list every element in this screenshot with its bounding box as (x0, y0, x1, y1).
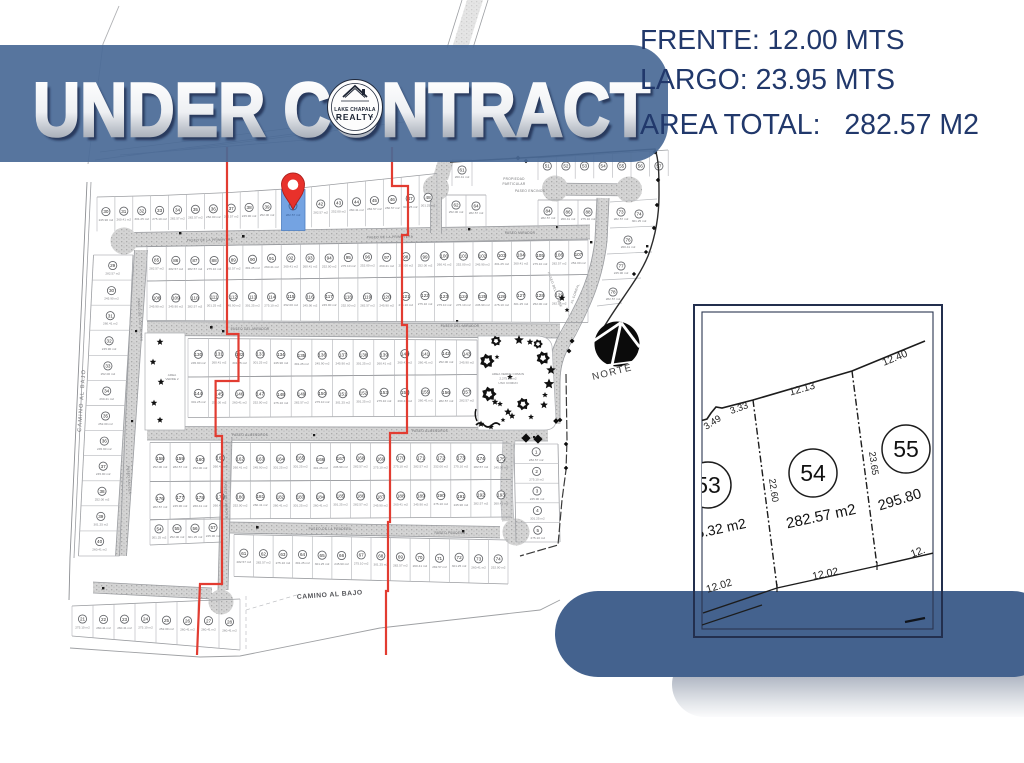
svg-text:PASEO ALMENDROS: PASEO ALMENDROS (412, 429, 448, 433)
svg-text:45: 45 (372, 198, 378, 203)
svg-text:275.10 m2: 275.10 m2 (418, 302, 433, 306)
svg-text:107: 107 (575, 252, 583, 257)
svg-text:186: 186 (357, 494, 365, 499)
svg-text:252.00 m2: 252.00 m2 (571, 261, 586, 265)
svg-text:282.57 m2: 282.57 m2 (170, 216, 185, 220)
svg-text:77: 77 (618, 264, 624, 269)
svg-text:260.41 m2: 260.41 m2 (514, 262, 529, 266)
svg-text:260.41 m2: 260.41 m2 (393, 503, 408, 507)
svg-text:25: 25 (164, 618, 170, 623)
svg-text:189: 189 (417, 494, 425, 499)
svg-text:95: 95 (346, 255, 352, 260)
svg-text:30: 30 (103, 209, 109, 214)
svg-text:282.57 m2: 282.57 m2 (606, 297, 621, 301)
svg-text:260.41 m2: 260.41 m2 (283, 265, 298, 269)
svg-text:103: 103 (498, 253, 506, 258)
svg-text:121: 121 (402, 294, 410, 299)
svg-text:260.41 m2: 260.41 m2 (213, 503, 228, 507)
svg-text:260.41 m2: 260.41 m2 (471, 565, 486, 569)
svg-text:245.90 m2: 245.90 m2 (315, 362, 330, 366)
svg-text:137: 137 (339, 352, 347, 357)
svg-text:168: 168 (357, 456, 365, 461)
svg-text:282.57 m2: 282.57 m2 (226, 266, 241, 270)
svg-text:118: 118 (345, 295, 353, 300)
svg-text:131: 131 (215, 352, 223, 357)
svg-text:70: 70 (417, 555, 423, 560)
svg-text:3: 3 (536, 489, 539, 494)
svg-text:260.41 m2: 260.41 m2 (377, 362, 392, 366)
svg-text:252.00 m2: 252.00 m2 (456, 263, 471, 267)
svg-text:252.00 m2: 252.00 m2 (331, 209, 346, 213)
svg-text:260.41 m2: 260.41 m2 (418, 361, 433, 365)
svg-text:275.10 m2: 275.10 m2 (276, 561, 291, 565)
svg-text:245.90 m2: 245.90 m2 (99, 218, 114, 222)
svg-text:301.25 m2: 301.25 m2 (356, 400, 371, 404)
svg-text:282.57 m2: 282.57 m2 (188, 216, 203, 220)
svg-text:245.90 m2: 245.90 m2 (334, 562, 349, 566)
svg-text:USO COMUN: USO COMUN (498, 381, 517, 385)
svg-text:96: 96 (365, 255, 371, 260)
svg-text:53: 53 (582, 164, 588, 169)
svg-text:99: 99 (422, 255, 428, 260)
svg-text:245.90 m2: 245.90 m2 (242, 214, 257, 218)
svg-text:252.00 m2: 252.00 m2 (193, 466, 208, 470)
svg-text:FRENTE: 12.00 MTS: FRENTE: 12.00 MTS (640, 24, 905, 55)
svg-text:115: 115 (287, 294, 295, 299)
svg-text:160: 160 (196, 457, 204, 462)
svg-text:282.57 m2: 282.57 m2 (353, 503, 368, 507)
svg-text:65: 65 (320, 553, 326, 558)
svg-text:301.25 m2: 301.25 m2 (335, 400, 350, 404)
svg-text:38: 38 (247, 205, 253, 210)
svg-text:252.00 m2: 252.00 m2 (433, 465, 448, 469)
svg-text:88: 88 (212, 258, 218, 263)
svg-text:301.25 m2: 301.25 m2 (293, 465, 308, 469)
svg-text:282.57 m2: 282.57 m2 (294, 400, 309, 404)
svg-text:301.25 m2: 301.25 m2 (134, 217, 149, 221)
svg-text:31: 31 (121, 209, 127, 214)
svg-text:VERDE 2: VERDE 2 (165, 377, 179, 381)
svg-text:245.90 m2: 245.90 m2 (459, 360, 474, 364)
svg-text:21: 21 (80, 617, 86, 622)
svg-text:301.25 m2: 301.25 m2 (333, 502, 348, 506)
svg-text:133: 133 (256, 352, 264, 357)
svg-text:282.57 m2: 282.57 m2 (459, 399, 474, 403)
svg-text:PARTICULAR: PARTICULAR (503, 182, 526, 186)
svg-text:98: 98 (403, 254, 409, 259)
svg-text:56: 56 (192, 526, 198, 531)
svg-text:275.10 m2: 275.10 m2 (354, 562, 369, 566)
svg-text:36: 36 (211, 206, 217, 211)
svg-text:117: 117 (326, 294, 334, 299)
svg-text:30: 30 (109, 288, 115, 293)
svg-text:123: 123 (440, 294, 448, 299)
svg-text:124: 124 (460, 294, 468, 299)
svg-text:282.57 m2: 282.57 m2 (105, 272, 120, 276)
svg-text:24: 24 (143, 616, 149, 621)
svg-text:108: 108 (153, 295, 161, 300)
svg-text:275.10 m2: 275.10 m2 (274, 401, 289, 405)
svg-text:174: 174 (477, 456, 485, 461)
svg-text:122: 122 (421, 293, 429, 298)
svg-text:282.57 m2: 282.57 m2 (552, 302, 567, 306)
svg-text:PASEO ALMENDROS: PASEO ALMENDROS (232, 433, 268, 437)
svg-text:260.41 m2: 260.41 m2 (117, 626, 132, 630)
svg-text:260.41 m2: 260.41 m2 (193, 504, 208, 508)
svg-text:245.90 m2: 245.90 m2 (191, 361, 206, 365)
svg-text:252.00 m2: 252.00 m2 (153, 465, 168, 469)
svg-text:135: 135 (298, 353, 306, 358)
svg-text:260.41 m2: 260.41 m2 (561, 217, 576, 221)
svg-text:282.57 m2: 282.57 m2 (413, 465, 428, 469)
svg-text:192: 192 (477, 492, 485, 497)
svg-text:260.41 m2: 260.41 m2 (232, 401, 247, 405)
svg-text:245.90 m2: 245.90 m2 (530, 497, 545, 501)
svg-text:252.00 m2: 252.00 m2 (418, 264, 433, 268)
svg-text:245.90 m2: 245.90 m2 (333, 465, 348, 469)
svg-text:282.57 m2: 282.57 m2 (385, 206, 400, 210)
svg-text:85: 85 (154, 258, 160, 263)
svg-text:28: 28 (227, 619, 233, 624)
svg-text:301.25 m2: 301.25 m2 (421, 204, 436, 208)
svg-text:PASEO PRADERA: PASEO PRADERA (435, 531, 467, 535)
svg-text:282.57 m2: 282.57 m2 (469, 211, 484, 215)
svg-text:275.10 m2: 275.10 m2 (341, 264, 356, 268)
svg-text:2,275.00 m2: 2,275.00 m2 (499, 377, 516, 381)
svg-text:245.90 m2: 245.90 m2 (253, 466, 268, 470)
svg-text:260.41 m2: 260.41 m2 (253, 503, 268, 507)
svg-text:260.41 m2: 260.41 m2 (99, 397, 114, 401)
svg-text:275.10 m2: 275.10 m2 (456, 303, 471, 307)
svg-text:34: 34 (104, 389, 110, 394)
svg-text:178: 178 (196, 495, 204, 500)
svg-text:32: 32 (139, 208, 145, 213)
svg-text:260.41 m2: 260.41 m2 (273, 504, 288, 508)
svg-text:AREA VERDE COMUN: AREA VERDE COMUN (492, 372, 524, 376)
svg-text:301.25 m2: 301.25 m2 (356, 361, 371, 365)
svg-text:113: 113 (249, 294, 257, 299)
svg-text:146: 146 (236, 392, 244, 397)
svg-text:38: 38 (99, 489, 105, 494)
svg-text:301.25 m2: 301.25 m2 (152, 536, 167, 540)
svg-text:184: 184 (317, 494, 325, 499)
svg-text:282.57 m2: 282.57 m2 (188, 267, 203, 271)
svg-text:48: 48 (426, 195, 432, 200)
svg-text:275.10 m2: 275.10 m2 (264, 304, 279, 308)
svg-text:162: 162 (236, 457, 244, 462)
svg-text:188: 188 (397, 494, 405, 499)
svg-text:260.41 m2: 260.41 m2 (103, 322, 118, 326)
svg-text:87: 87 (192, 258, 198, 263)
svg-text:39: 39 (264, 204, 270, 209)
svg-text:55: 55 (619, 164, 625, 169)
svg-text:245.90 m2: 245.90 m2 (303, 304, 318, 308)
svg-text:86: 86 (565, 210, 571, 215)
svg-text:84: 84 (545, 209, 551, 214)
svg-text:275.10 m2: 275.10 m2 (494, 303, 509, 307)
svg-text:282.57 m2: 282.57 m2 (149, 267, 164, 271)
svg-text:282.57 m2: 282.57 m2 (541, 216, 556, 220)
svg-text:166: 166 (317, 457, 325, 462)
svg-text:1: 1 (535, 449, 538, 454)
svg-text:282.57 m2: 282.57 m2 (367, 207, 382, 211)
svg-text:252.00 m2: 252.00 m2 (533, 302, 548, 306)
svg-text:176: 176 (156, 496, 164, 501)
svg-text:167: 167 (337, 456, 345, 461)
svg-text:301.25 m2: 301.25 m2 (494, 262, 509, 266)
svg-text:252.00 m2: 252.00 m2 (101, 372, 116, 376)
svg-text:252.00 m2: 252.00 m2 (398, 263, 413, 267)
svg-text:90: 90 (250, 257, 256, 262)
svg-text:275.10 m2: 275.10 m2 (533, 262, 548, 266)
svg-text:116: 116 (306, 295, 314, 300)
svg-text:147: 147 (256, 392, 264, 397)
svg-text:169: 169 (377, 457, 385, 462)
svg-text:191: 191 (457, 494, 465, 499)
svg-text:74: 74 (496, 557, 502, 562)
svg-text:151: 151 (339, 391, 347, 396)
svg-text:89: 89 (231, 257, 237, 262)
svg-text:275.10 m2: 275.10 m2 (138, 625, 153, 629)
svg-text:159: 159 (176, 456, 184, 461)
svg-text:181: 181 (256, 494, 264, 499)
svg-text:57: 57 (210, 525, 216, 530)
svg-text:245.90 m2: 245.90 m2 (335, 361, 350, 365)
svg-text:31: 31 (108, 313, 114, 318)
svg-text:173: 173 (457, 456, 465, 461)
svg-text:275.10 m2: 275.10 m2 (433, 502, 448, 506)
svg-text:275.10 m2: 275.10 m2 (75, 626, 90, 630)
svg-text:68: 68 (378, 553, 384, 558)
svg-text:301.25 m2: 301.25 m2 (514, 302, 529, 306)
svg-text:301.25 m2: 301.25 m2 (253, 361, 268, 365)
svg-text:260.41 m2: 260.41 m2 (621, 245, 636, 249)
svg-text:33: 33 (157, 208, 163, 213)
svg-text:301.25 m2: 301.25 m2 (273, 466, 288, 470)
svg-text:2: 2 (535, 469, 538, 474)
svg-text:PASEO ENCINOS: PASEO ENCINOS (515, 189, 545, 193)
svg-text:260.41 m2: 260.41 m2 (397, 360, 412, 364)
svg-text:193: 193 (497, 493, 505, 498)
svg-text:120: 120 (383, 295, 391, 300)
svg-text:29: 29 (110, 263, 116, 268)
svg-text:158: 158 (156, 456, 164, 461)
svg-text:282.57 m2: 282.57 m2 (313, 210, 328, 214)
svg-text:165: 165 (297, 456, 305, 461)
svg-text:252.00 m2: 252.00 m2 (206, 215, 221, 219)
svg-text:179: 179 (216, 494, 224, 499)
svg-text:252.00 m2: 252.00 m2 (95, 497, 110, 501)
svg-text:71: 71 (437, 556, 443, 561)
svg-text:245.90 m2: 245.90 m2 (413, 503, 428, 507)
svg-text:156: 156 (442, 390, 450, 395)
svg-text:282.57 m2: 282.57 m2 (614, 217, 629, 221)
svg-text:142: 142 (442, 351, 450, 356)
svg-text:114: 114 (268, 295, 276, 300)
svg-text:301.25 m2: 301.25 m2 (245, 303, 260, 307)
svg-text:282.57 m2: 282.57 m2 (353, 465, 368, 469)
svg-text:260.41 m2: 260.41 m2 (116, 218, 131, 222)
svg-text:275.10 m2: 275.10 m2 (315, 400, 330, 404)
svg-text:260.41 m2: 260.41 m2 (313, 503, 328, 507)
svg-text:105: 105 (536, 253, 544, 258)
svg-text:100: 100 (440, 253, 448, 258)
svg-text:252.00 m2: 252.00 m2 (170, 535, 185, 539)
svg-text:252.00 m2: 252.00 m2 (283, 303, 298, 307)
svg-text:93: 93 (307, 256, 313, 261)
svg-text:61: 61 (241, 551, 247, 556)
svg-text:106: 106 (555, 253, 563, 258)
svg-text:252.00 m2: 252.00 m2 (322, 265, 337, 269)
svg-text:301.25 m2: 301.25 m2 (373, 562, 388, 566)
svg-text:152: 152 (360, 391, 368, 396)
svg-text:282.57 m2: 282.57 m2 (286, 213, 301, 217)
svg-text:275.10 m2: 275.10 m2 (207, 267, 222, 271)
svg-text:282.57 m2: 282.57 m2 (153, 505, 168, 509)
svg-text:43: 43 (336, 201, 342, 206)
svg-text:PASEO DEL MIRADOR: PASEO DEL MIRADOR (231, 327, 270, 331)
svg-text:301.25 m2: 301.25 m2 (632, 219, 647, 223)
svg-text:252.00 m2: 252.00 m2 (449, 210, 464, 214)
svg-text:187: 187 (377, 494, 385, 499)
svg-text:175: 175 (497, 456, 505, 461)
svg-text:260.41 m2: 260.41 m2 (349, 208, 364, 212)
svg-text:155: 155 (422, 390, 430, 395)
svg-text:260.41 m2: 260.41 m2 (96, 626, 111, 630)
svg-text:171: 171 (417, 456, 425, 461)
svg-text:66: 66 (339, 553, 345, 558)
svg-text:245.90 m2: 245.90 m2 (379, 304, 394, 308)
svg-text:182: 182 (277, 495, 285, 500)
svg-text:127: 127 (517, 293, 525, 298)
svg-text:282.57 m2: 282.57 m2 (439, 399, 454, 403)
svg-text:76: 76 (625, 238, 631, 243)
svg-text:301.25 m2: 301.25 m2 (313, 466, 328, 470)
svg-text:141: 141 (422, 352, 430, 357)
svg-text:245.90 m2: 245.90 m2 (614, 271, 629, 275)
svg-text:260.41 m2: 260.41 m2 (418, 399, 433, 403)
svg-text:REALTY: REALTY (336, 112, 374, 122)
svg-text:282.57 m2: 282.57 m2 (360, 304, 375, 308)
svg-text:245.90 m2: 245.90 m2 (97, 447, 112, 451)
svg-text:94: 94 (327, 256, 333, 261)
svg-text:AREA TOTAL: 282.57 M2: AREA TOTAL: 282.57 M2 (640, 109, 979, 141)
svg-text:119: 119 (364, 295, 372, 300)
svg-text:132: 132 (236, 352, 244, 357)
svg-text:148: 148 (277, 392, 285, 397)
svg-text:260.41 m2: 260.41 m2 (233, 466, 248, 470)
svg-text:164: 164 (277, 457, 285, 462)
svg-text:275.10 m2: 275.10 m2 (377, 399, 392, 403)
svg-text:252.00 m2: 252.00 m2 (233, 504, 248, 508)
svg-text:245.90 m2: 245.90 m2 (475, 262, 490, 266)
svg-text:42: 42 (318, 202, 324, 207)
svg-text:163: 163 (256, 457, 264, 462)
svg-text:260.41 m2: 260.41 m2 (379, 264, 394, 268)
svg-text:PASEO DEL MIRADOR: PASEO DEL MIRADOR (441, 324, 480, 328)
svg-text:62: 62 (453, 203, 459, 208)
svg-text:34: 34 (175, 208, 181, 213)
svg-text:73: 73 (618, 210, 624, 215)
svg-text:69: 69 (398, 554, 404, 559)
svg-text:LARGO: 23.95 MTS: LARGO: 23.95 MTS (640, 64, 895, 96)
svg-text:275.10 m2: 275.10 m2 (152, 217, 167, 221)
svg-text:138: 138 (360, 352, 368, 357)
svg-text:56: 56 (638, 164, 644, 169)
svg-text:301.25 m2: 301.25 m2 (207, 303, 222, 307)
svg-text:PASEO DE LA PRADERA: PASEO DE LA PRADERA (309, 527, 352, 531)
svg-text:139: 139 (380, 353, 388, 358)
svg-text:23: 23 (122, 617, 128, 622)
svg-text:245.90 m2: 245.90 m2 (274, 361, 289, 365)
svg-text:22: 22 (101, 617, 107, 622)
svg-text:282.57 m2: 282.57 m2 (529, 458, 544, 462)
svg-text:134: 134 (277, 352, 285, 357)
svg-text:136: 136 (318, 353, 326, 358)
svg-text:149: 149 (298, 391, 306, 396)
svg-text:54: 54 (601, 164, 607, 169)
svg-text:245.90 m2: 245.90 m2 (149, 304, 164, 308)
svg-text:252.00 m2: 252.00 m2 (491, 566, 506, 570)
svg-text:252.00 m2: 252.00 m2 (159, 627, 174, 631)
svg-text:275.10 m2: 275.10 m2 (581, 217, 596, 221)
svg-text:130: 130 (194, 352, 202, 357)
svg-text:301.25 m2: 301.25 m2 (295, 561, 310, 565)
svg-text:5: 5 (537, 528, 540, 533)
svg-text:301.25 m2: 301.25 m2 (315, 562, 330, 566)
svg-text:55: 55 (174, 526, 180, 531)
svg-text:245.90 m2: 245.90 m2 (102, 347, 117, 351)
svg-text:153: 153 (380, 390, 388, 395)
svg-text:252.00 m2: 252.00 m2 (212, 401, 227, 405)
svg-text:275.10 m2: 275.10 m2 (529, 477, 544, 481)
svg-text:245.90 m2: 245.90 m2 (454, 503, 469, 507)
svg-text:104: 104 (517, 253, 525, 258)
svg-text:36: 36 (102, 439, 108, 444)
svg-text:260.41 m2: 260.41 m2 (455, 175, 470, 179)
svg-text:245.90 m2: 245.90 m2 (475, 303, 490, 307)
svg-text:110: 110 (191, 295, 199, 300)
svg-text:78: 78 (610, 290, 616, 295)
svg-text:301.25 m2: 301.25 m2 (452, 564, 467, 568)
svg-text:172: 172 (437, 456, 445, 461)
svg-text:245.90 m2: 245.90 m2 (494, 465, 509, 469)
svg-text:111: 111 (211, 294, 218, 299)
svg-text:33: 33 (105, 364, 111, 369)
svg-text:185: 185 (337, 493, 345, 498)
svg-text:101: 101 (460, 254, 468, 259)
svg-text:64: 64 (473, 204, 479, 209)
svg-text:282.57 m2: 282.57 m2 (393, 563, 408, 567)
svg-text:37: 37 (101, 464, 107, 469)
svg-text:252.00 m2: 252.00 m2 (360, 264, 375, 268)
svg-text:143: 143 (463, 351, 471, 356)
svg-text:282.57 m2: 282.57 m2 (168, 267, 183, 271)
svg-text:35: 35 (193, 207, 199, 212)
svg-text:73: 73 (476, 556, 482, 561)
svg-text:4: 4 (536, 508, 539, 513)
svg-text:301.25 m2: 301.25 m2 (403, 205, 418, 209)
svg-text:301.25 m2: 301.25 m2 (93, 522, 108, 526)
svg-text:301.25 m2: 301.25 m2 (188, 535, 203, 539)
svg-text:282.57 m2: 282.57 m2 (188, 304, 203, 308)
svg-text:126: 126 (498, 294, 506, 299)
svg-text:301.25 m2: 301.25 m2 (232, 361, 247, 365)
svg-text:301.25 m2: 301.25 m2 (294, 362, 309, 366)
svg-text:46: 46 (390, 197, 396, 202)
svg-text:61: 61 (459, 168, 465, 173)
svg-text:35: 35 (103, 414, 109, 419)
